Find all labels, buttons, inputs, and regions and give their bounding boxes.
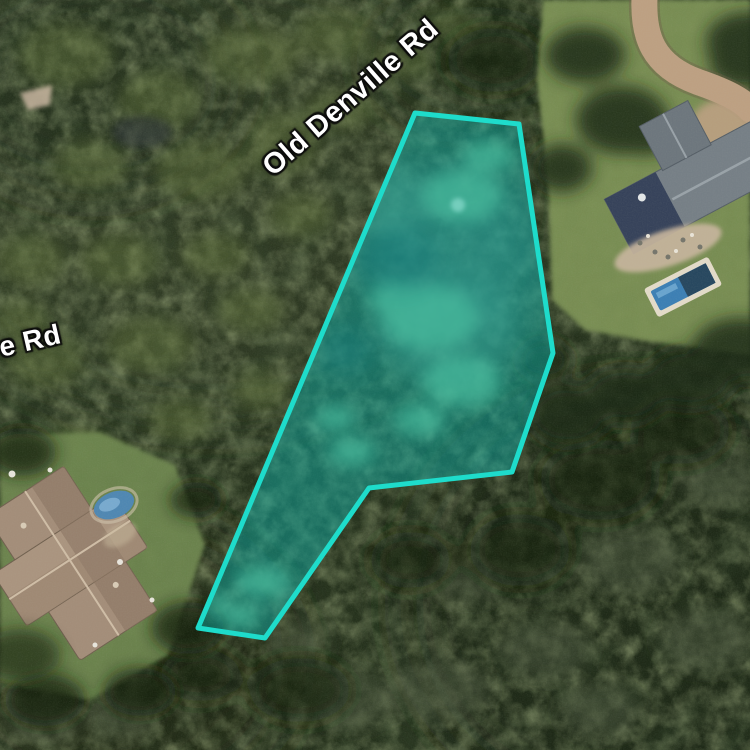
satellite-map-view[interactable]: Old Denville Rd e Rd bbox=[0, 0, 750, 750]
satellite-map-canvas bbox=[0, 0, 750, 750]
